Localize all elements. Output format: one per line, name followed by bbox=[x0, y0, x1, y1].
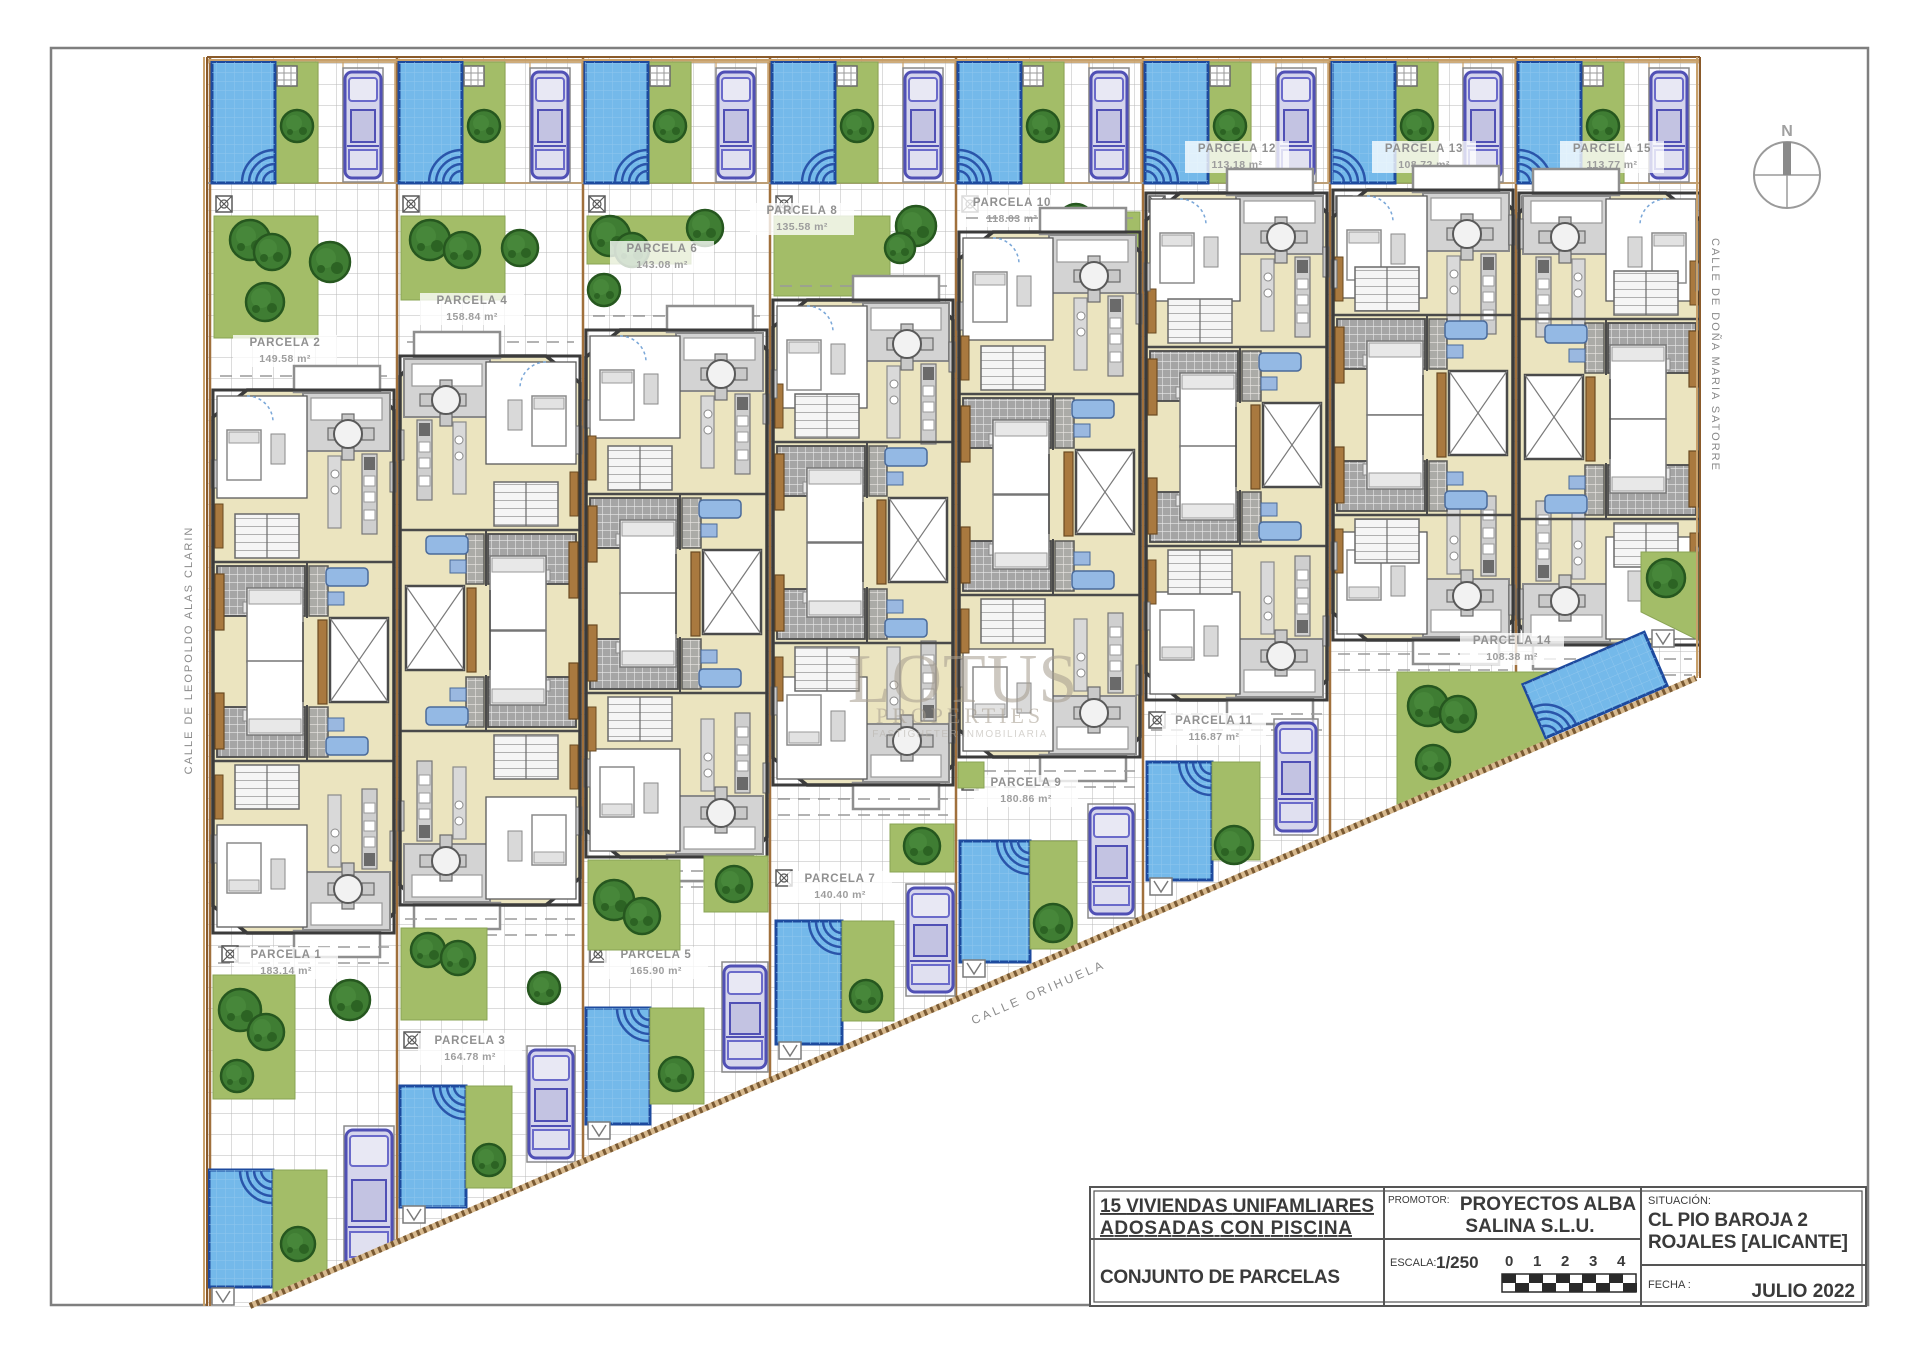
svg-text:CALLE DE DOÑA MARIA SATORRE: CALLE DE DOÑA MARIA SATORRE bbox=[1709, 238, 1722, 472]
svg-text:135.58 m²: 135.58 m² bbox=[776, 221, 828, 233]
svg-text:CONJUNTO DE PARCELAS: CONJUNTO DE PARCELAS bbox=[1100, 1267, 1340, 1288]
svg-text:1/250: 1/250 bbox=[1436, 1253, 1479, 1272]
svg-text:JULIO 2022: JULIO 2022 bbox=[1752, 1281, 1856, 1302]
svg-text:CL PIO BAROJA 2: CL PIO BAROJA 2 bbox=[1648, 1210, 1808, 1231]
svg-text:165.90 m²: 165.90 m² bbox=[630, 965, 682, 977]
svg-text:CALLE DE LEOPOLDO ALAS CLARIN: CALLE DE LEOPOLDO ALAS CLARIN bbox=[183, 526, 195, 775]
svg-text:PARCELA 7: PARCELA 7 bbox=[804, 873, 875, 885]
svg-text:108.38 m²: 108.38 m² bbox=[1486, 651, 1538, 663]
svg-text:N: N bbox=[1781, 123, 1793, 140]
svg-text:PARCELA 13: PARCELA 13 bbox=[1385, 143, 1463, 155]
svg-text:PARCELA 6: PARCELA 6 bbox=[626, 243, 697, 255]
svg-text:PARCELA 5: PARCELA 5 bbox=[620, 949, 691, 961]
svg-text:3: 3 bbox=[1589, 1253, 1597, 1270]
svg-text:15 VIVIENDAS UNIFAMLIARES: 15 VIVIENDAS UNIFAMLIARES bbox=[1100, 1196, 1374, 1217]
svg-text:140.40 m²: 140.40 m² bbox=[814, 889, 866, 901]
svg-text:SITUACIÓN:: SITUACIÓN: bbox=[1648, 1194, 1711, 1207]
svg-text:SALINA S.L.U.: SALINA S.L.U. bbox=[1465, 1216, 1594, 1237]
svg-text:FASTIGHETER INMOBILIARIA: FASTIGHETER INMOBILIARIA bbox=[872, 729, 1047, 740]
svg-text:PARCELA 11: PARCELA 11 bbox=[1175, 715, 1253, 727]
svg-text:FECHA :: FECHA : bbox=[1648, 1279, 1691, 1291]
svg-text:116.87 m²: 116.87 m² bbox=[1189, 731, 1240, 743]
svg-text:PROPERTIES: PROPERTIES bbox=[876, 703, 1044, 728]
svg-text:PROMOTOR:: PROMOTOR: bbox=[1388, 1195, 1449, 1206]
svg-text:164.78 m²: 164.78 m² bbox=[444, 1051, 496, 1063]
svg-text:PARCELA 4: PARCELA 4 bbox=[436, 295, 507, 307]
svg-text:158.84 m²: 158.84 m² bbox=[446, 311, 498, 323]
svg-text:2: 2 bbox=[1561, 1253, 1569, 1270]
svg-text:ADOSADAS CON PISCINA: ADOSADAS CON PISCINA bbox=[1100, 1218, 1352, 1239]
svg-text:PARCELA 1: PARCELA 1 bbox=[250, 949, 321, 961]
svg-text:4: 4 bbox=[1617, 1253, 1626, 1270]
svg-text:118.03 m²: 118.03 m² bbox=[987, 213, 1038, 225]
svg-text:PARCELA 2: PARCELA 2 bbox=[249, 337, 320, 349]
svg-text:PARCELA 9: PARCELA 9 bbox=[990, 777, 1061, 789]
svg-text:180.86 m²: 180.86 m² bbox=[1000, 793, 1052, 805]
svg-text:1: 1 bbox=[1533, 1253, 1541, 1270]
svg-text:PARCELA 15: PARCELA 15 bbox=[1573, 143, 1651, 155]
svg-text:PARCELA 12: PARCELA 12 bbox=[1198, 143, 1276, 155]
svg-text:143.08 m²: 143.08 m² bbox=[636, 259, 688, 271]
svg-text:PARCELA 14: PARCELA 14 bbox=[1473, 635, 1551, 647]
svg-text:PARCELA 3: PARCELA 3 bbox=[434, 1035, 505, 1047]
svg-text:ROJALES [ALICANTE]: ROJALES [ALICANTE] bbox=[1648, 1232, 1848, 1253]
svg-text:ESCALA:: ESCALA: bbox=[1390, 1257, 1436, 1269]
svg-text:149.58 m²: 149.58 m² bbox=[259, 353, 311, 365]
svg-text:PARCELA 8: PARCELA 8 bbox=[766, 205, 837, 217]
svg-text:0: 0 bbox=[1505, 1253, 1513, 1270]
svg-text:PROYECTOS ALBA: PROYECTOS ALBA bbox=[1460, 1194, 1637, 1215]
